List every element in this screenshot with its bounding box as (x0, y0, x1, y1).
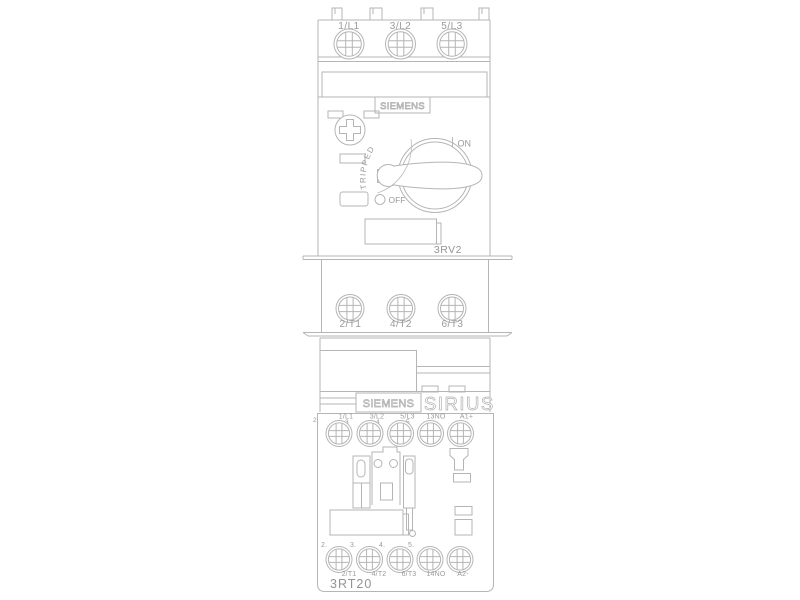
screw-terminal-icon (388, 421, 414, 447)
off-label: OFF (389, 195, 406, 205)
contactor-terminal-label-13no: 13NO (426, 414, 445, 421)
brand-band: SIEMENS SIRIUS (356, 393, 495, 414)
center-window (381, 483, 393, 500)
position-marker: 3. (350, 542, 356, 549)
contactor-terminal-label-a2: A2- (457, 571, 469, 578)
screw-terminal-icon (418, 421, 444, 447)
screw-terminal-icon (357, 421, 383, 447)
screw-terminal-icon (448, 421, 474, 447)
side-slot (455, 520, 472, 536)
breaker-model-label: 3RV2 (434, 244, 462, 256)
center-block (372, 447, 400, 505)
screw-terminal-icon (386, 29, 416, 59)
breaker-brand-plate: SIEMENS (375, 97, 430, 113)
side-slot (454, 474, 471, 483)
din-rail-clip (450, 449, 468, 471)
vent-slot (328, 111, 343, 118)
side-slot (455, 507, 472, 516)
contactor-terminal-label-6t3: 6/T3 (402, 571, 417, 578)
position-marker: 4. (379, 542, 385, 549)
breaker-brand-text: SIEMENS (380, 101, 425, 112)
rotary-handle (389, 162, 482, 189)
test-button (340, 192, 368, 206)
center-hole (374, 460, 382, 468)
contactor-model-label: 3RT20 (330, 577, 372, 591)
drawing-canvas: 1/L1 3/L2 5/L3 SIEMENS (0, 0, 800, 600)
contactor-label-window (330, 510, 403, 535)
screw-terminal-icon (387, 547, 413, 573)
screw-terminal-icon (326, 547, 352, 573)
breaker-3rv2: 1/L1 3/L2 5/L3 SIEMENS (303, 8, 512, 336)
contactor-3rt20: 1/L1 3/L2 5/L3 13NO A1+ 2 3 4 5 (313, 414, 494, 592)
small-hole (410, 531, 416, 537)
position-marker: 2. (321, 542, 327, 549)
breaker-rotary-switch: TRIPPED ON OFF (358, 137, 482, 213)
sirius-series-text: SIRIUS (424, 393, 495, 414)
screw-terminal-icon (326, 421, 352, 447)
screw-terminal-icon (447, 547, 473, 573)
on-label: ON (458, 139, 472, 149)
contactor-terminal-label-4t2: 4/T2 (372, 571, 387, 578)
screw-terminal-icon (357, 547, 383, 573)
rotary-handle-hub (377, 165, 394, 187)
contactor-terminal-label-a1: A1+ (460, 414, 473, 421)
position-marker: 2 (313, 417, 317, 424)
motor-starter-line-drawing: 1/L1 3/L2 5/L3 SIEMENS (0, 0, 800, 600)
aux-slot (406, 459, 414, 474)
contactor-brand-text: SIEMENS (363, 398, 415, 410)
breaker-terminal-label-4t2: 4/T2 (390, 319, 412, 330)
aux-slot (357, 460, 365, 477)
tripped-label: TRIPPED (358, 144, 376, 190)
screw-terminal-icon (437, 29, 467, 59)
breaker-terminal-label-6t3: 6/T3 (441, 319, 463, 330)
current-adjust-dial-icon (335, 115, 365, 145)
contactor-terminal-label-14no: 14NO (426, 571, 445, 578)
latch-tail (407, 508, 413, 530)
off-position-mark (375, 195, 385, 205)
position-marker: 5. (408, 542, 414, 549)
screw-terminal-icon (334, 29, 364, 59)
breaker-terminal-label-2t1: 2/T1 (339, 319, 361, 330)
contactor-center-details (330, 447, 472, 537)
breaker-label-window (365, 219, 441, 244)
center-hole (390, 460, 398, 468)
screw-terminal-icon (417, 547, 443, 573)
breaker-top-tabs (332, 8, 489, 20)
